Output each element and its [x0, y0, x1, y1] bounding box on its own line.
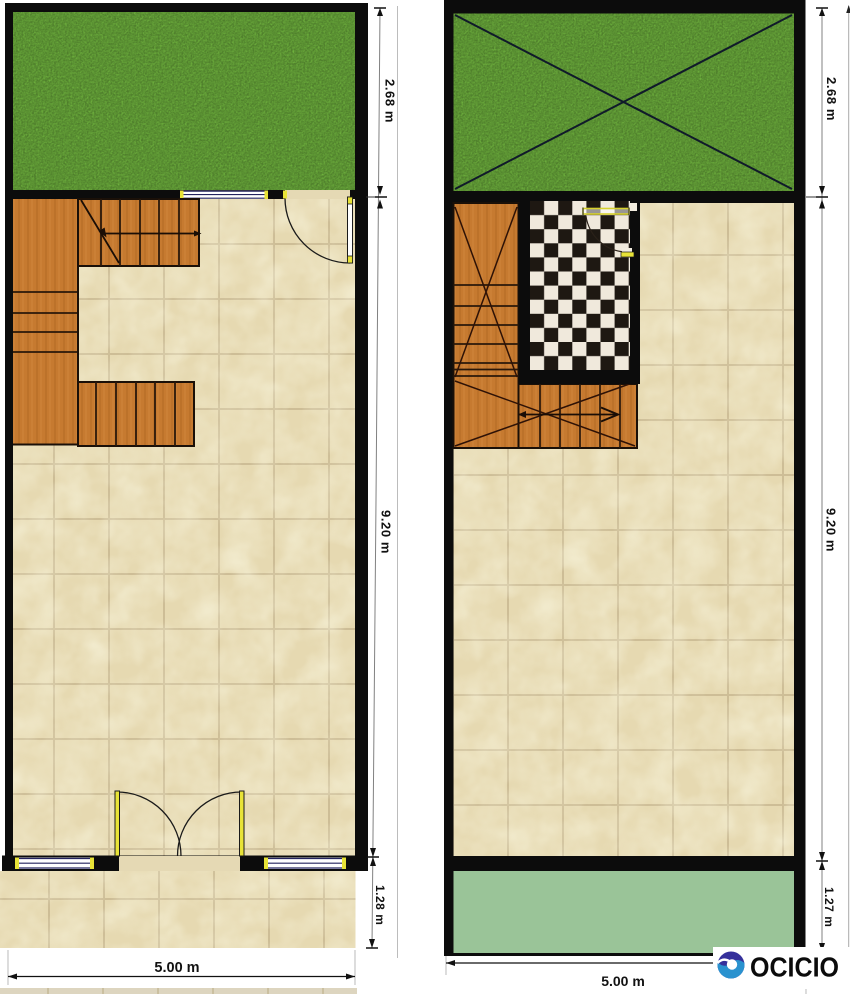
- svg-text:5.00 m: 5.00 m: [601, 973, 645, 989]
- svg-text:2.68 m: 2.68 m: [824, 77, 839, 121]
- svg-text:2.68 m: 2.68 m: [383, 79, 398, 123]
- svg-text:1.28 m: 1.28 m: [373, 885, 387, 925]
- svg-text:9.20 m: 9.20 m: [379, 510, 394, 554]
- svg-text:OCICIO: OCICIO: [750, 952, 839, 983]
- svg-text:1.27 m: 1.27 m: [822, 887, 836, 927]
- svg-text:5.00 m: 5.00 m: [154, 960, 199, 976]
- svg-text:9.20 m: 9.20 m: [824, 508, 839, 552]
